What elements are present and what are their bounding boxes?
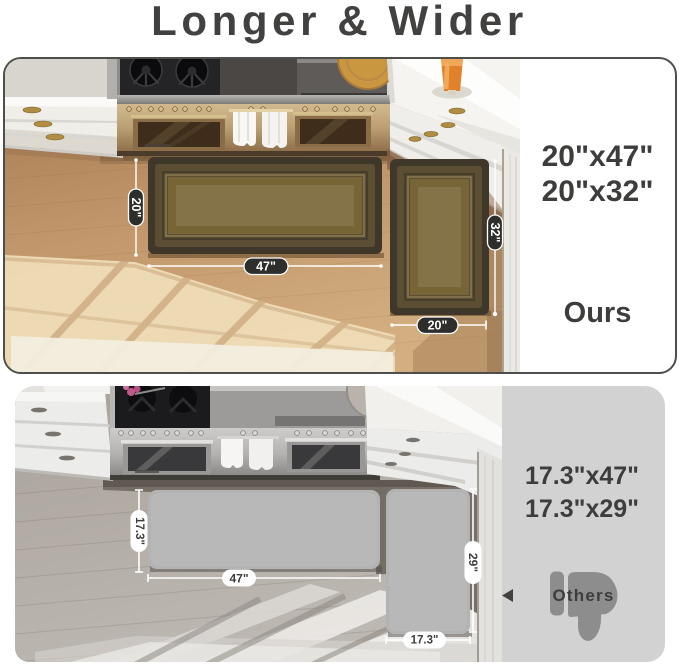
svg-text:17.3": 17.3" xyxy=(133,517,145,545)
svg-text:17.3": 17.3" xyxy=(411,635,439,647)
svg-text:29": 29" xyxy=(466,553,480,572)
svg-text:20": 20" xyxy=(428,319,448,333)
svg-text:47": 47" xyxy=(256,260,276,274)
svg-text:32": 32" xyxy=(488,223,502,243)
svg-text:20": 20" xyxy=(129,198,143,218)
svg-text:47": 47" xyxy=(229,572,248,586)
